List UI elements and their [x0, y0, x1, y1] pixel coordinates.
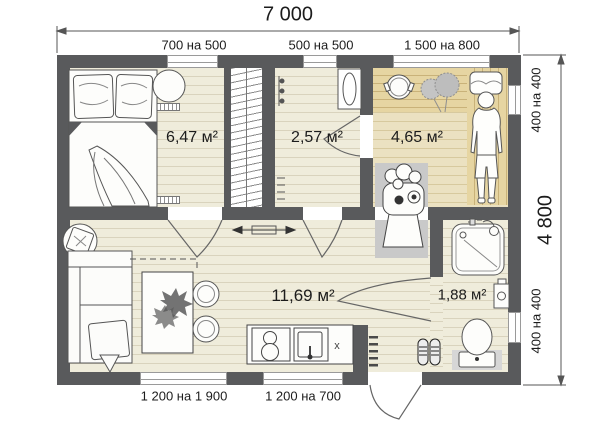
kitchen-x-mark: x	[334, 340, 340, 352]
window-living-1	[140, 372, 227, 385]
wall-living-bathroom	[430, 220, 443, 277]
closet-divider	[246, 68, 247, 207]
bathroom-area-label: 1,88 м²	[438, 287, 487, 304]
hallway-area-label: 2,57 м²	[291, 129, 343, 147]
dimension-total-width: 7 000	[263, 4, 313, 27]
bedroom-area-label: 6,47 м²	[166, 129, 218, 147]
sauna-top-bench	[373, 68, 467, 112]
living-area-label: 11,69 м²	[271, 286, 334, 306]
wall-mid-4	[428, 207, 508, 220]
window-sauna	[393, 55, 490, 68]
wall-closet-hallway	[262, 68, 275, 207]
door-entry	[370, 385, 421, 419]
window-label-right-2: 400 на 400	[529, 288, 544, 353]
dimension-total-height: 4 800	[535, 195, 558, 245]
window-label-right-1: 400 на 400	[529, 67, 544, 132]
window-label-bottom-2: 1 200 на 700	[265, 389, 341, 404]
window-label-top-3: 1 500 на 800	[404, 38, 480, 53]
window-living-2	[263, 372, 343, 385]
bedside-rug-1	[151, 103, 180, 111]
stove-wall-gap	[375, 207, 428, 220]
sauna-lounger-bench	[467, 68, 508, 205]
wall-mid-2	[222, 207, 303, 220]
window-hallway	[303, 55, 337, 68]
entry-door-gap	[368, 372, 422, 385]
sauna-area-label: 4,65 м²	[391, 129, 443, 147]
wall-mid-3	[342, 207, 375, 220]
wall-left	[57, 55, 70, 385]
window-bedroom	[167, 55, 218, 68]
window-label-top-1: 700 на 500	[161, 38, 226, 53]
window-sauna-right	[508, 85, 521, 115]
bedside-rug-2	[151, 196, 180, 204]
window-label-bottom-1: 1 200 на 1 900	[141, 389, 228, 404]
wall-bedroom-closet	[224, 68, 231, 207]
wall-mid-1	[70, 207, 168, 220]
wall-hallway-sauna-upper	[360, 68, 373, 115]
window-label-top-2: 500 на 500	[288, 38, 353, 53]
floor-plan: 7 000 4 800 700 на 500 500 на 500 1 500 …	[0, 0, 600, 424]
wall-entry-stub	[353, 325, 368, 372]
toilet-base-pad	[452, 350, 502, 370]
wall-hallway-sauna-lower	[360, 158, 373, 207]
window-bathroom	[508, 312, 521, 343]
